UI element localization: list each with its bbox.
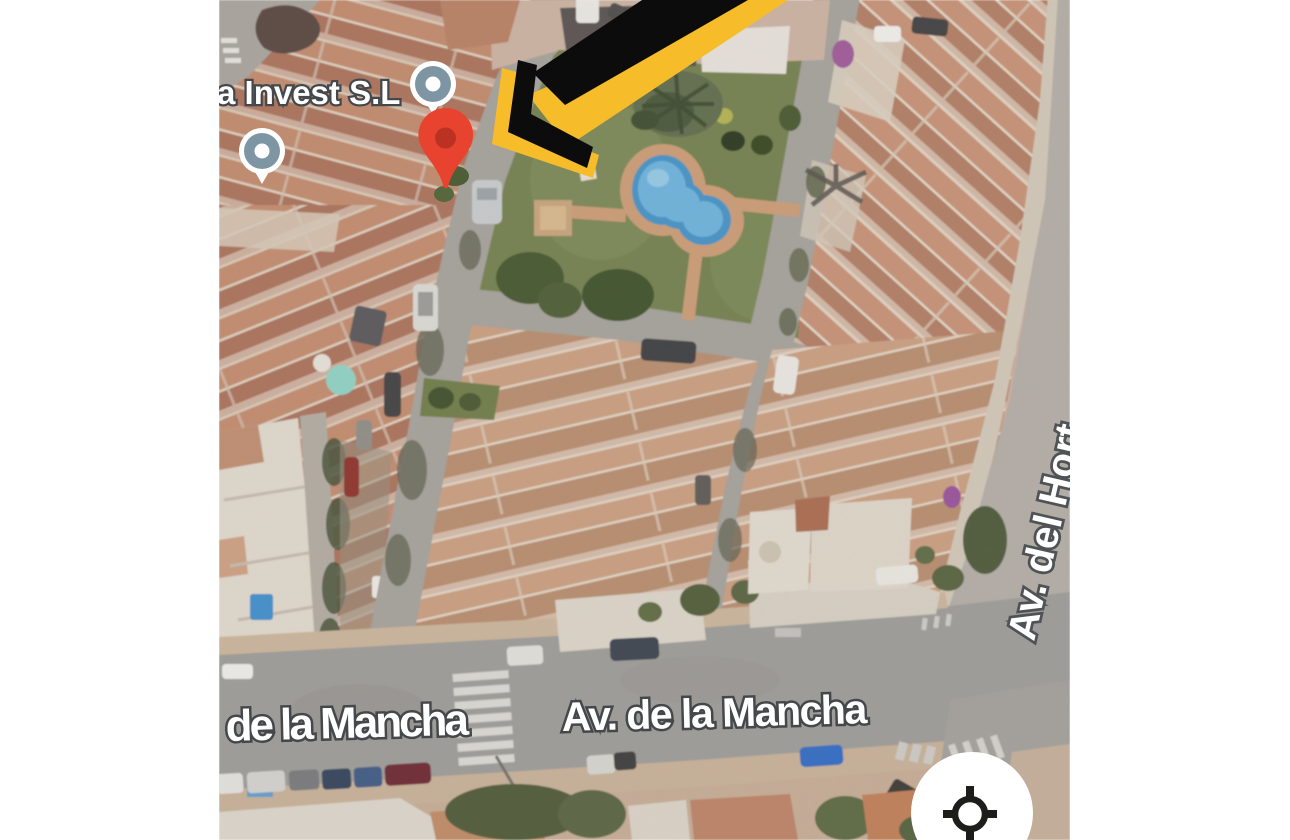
- svg-text:Av. de la Mancha: Av. de la Mancha: [561, 686, 869, 740]
- svg-text:de la Mancha: de la Mancha: [225, 696, 470, 751]
- svg-text:a Invest S.L: a Invest S.L: [217, 74, 400, 111]
